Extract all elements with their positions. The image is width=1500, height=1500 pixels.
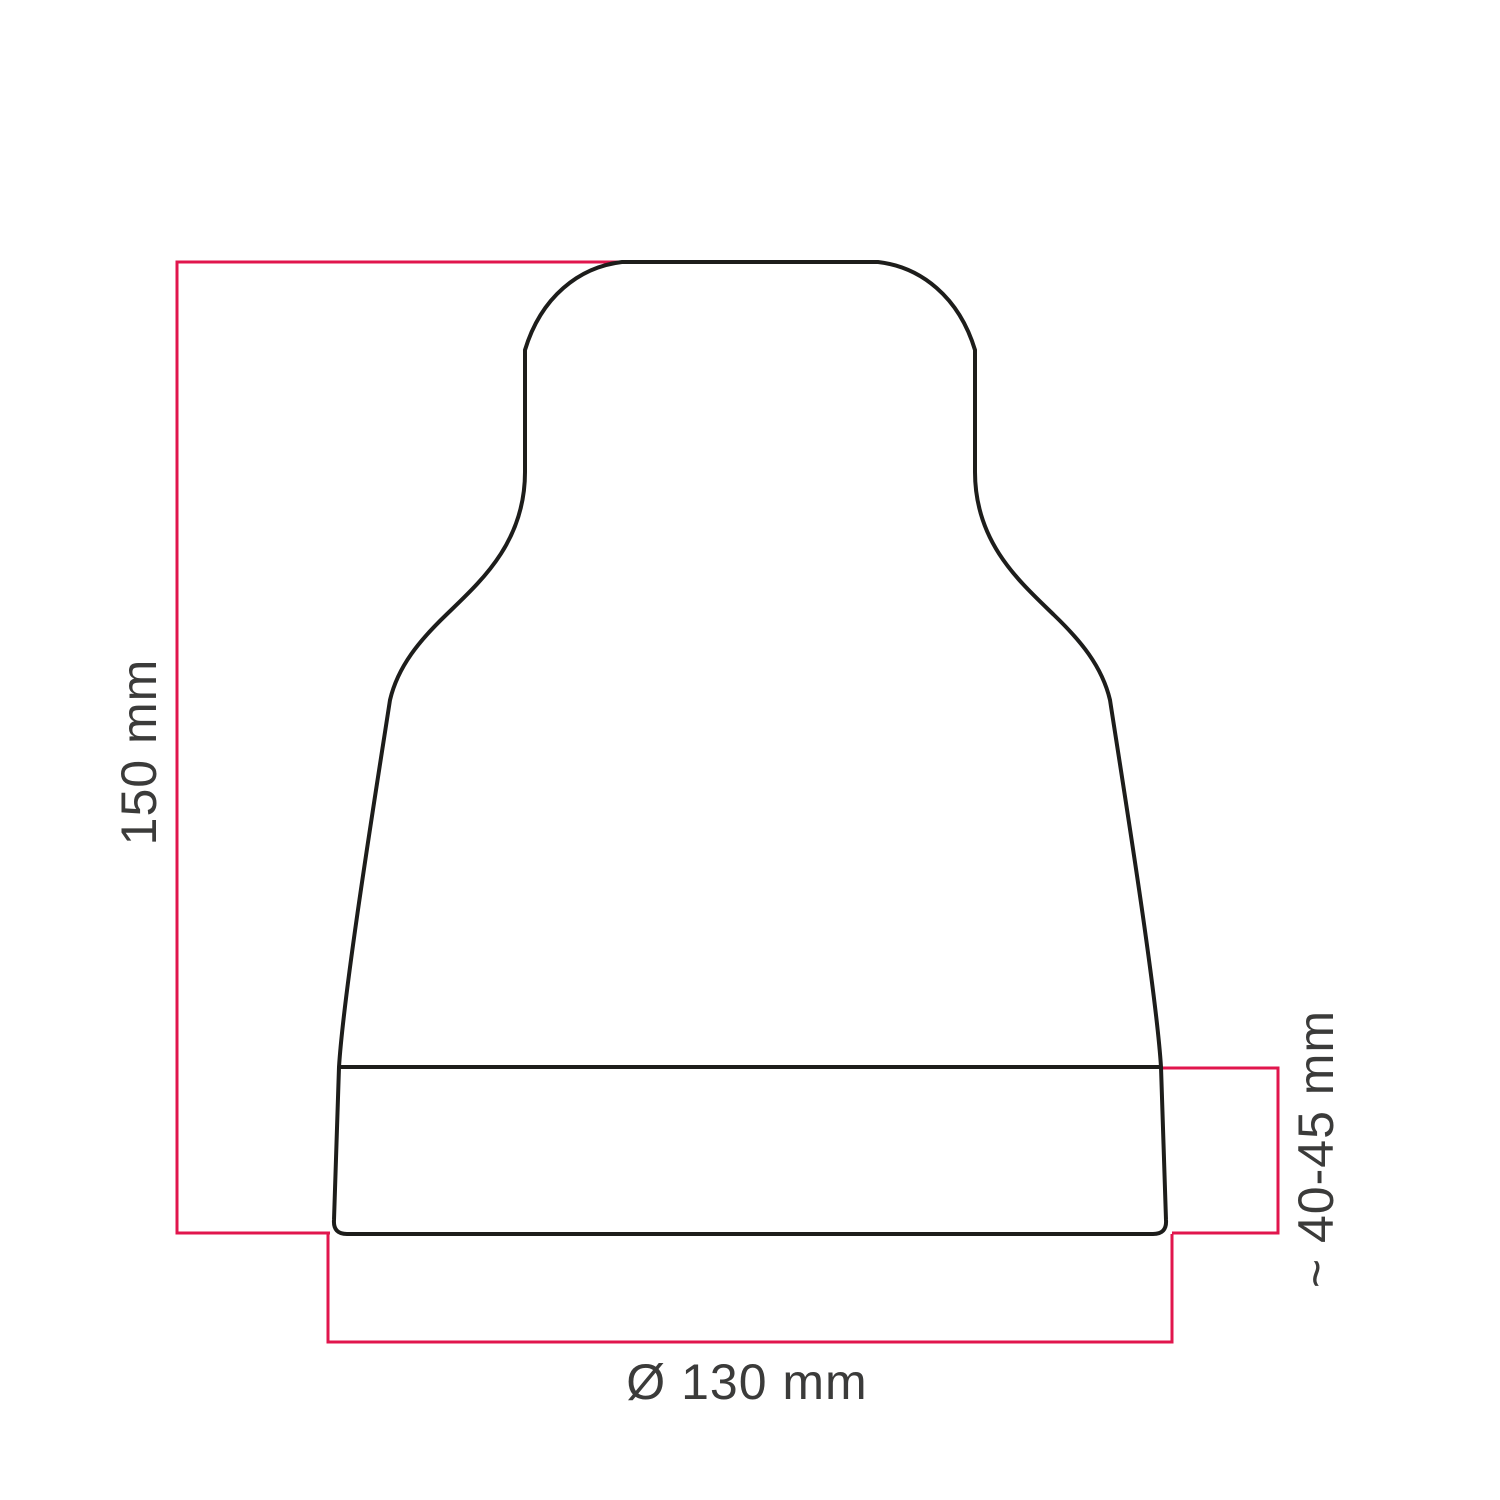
height-dimension-label: 150 mm	[107, 502, 171, 1002]
lampshade-technical-drawing	[0, 0, 1500, 1500]
diameter-dimension-line	[328, 1234, 1172, 1342]
band-dimension-label: ~ 40-45 mm	[1284, 899, 1348, 1399]
lampshade-outline	[334, 262, 1166, 1234]
band-dimension-line	[1163, 1068, 1278, 1233]
diameter-dimension-label: Ø 130 mm	[497, 1350, 997, 1414]
height-dimension-line	[177, 262, 620, 1233]
dimension-diagram-canvas: 150 mm ~ 40-45 mm Ø 130 mm	[0, 0, 1500, 1500]
